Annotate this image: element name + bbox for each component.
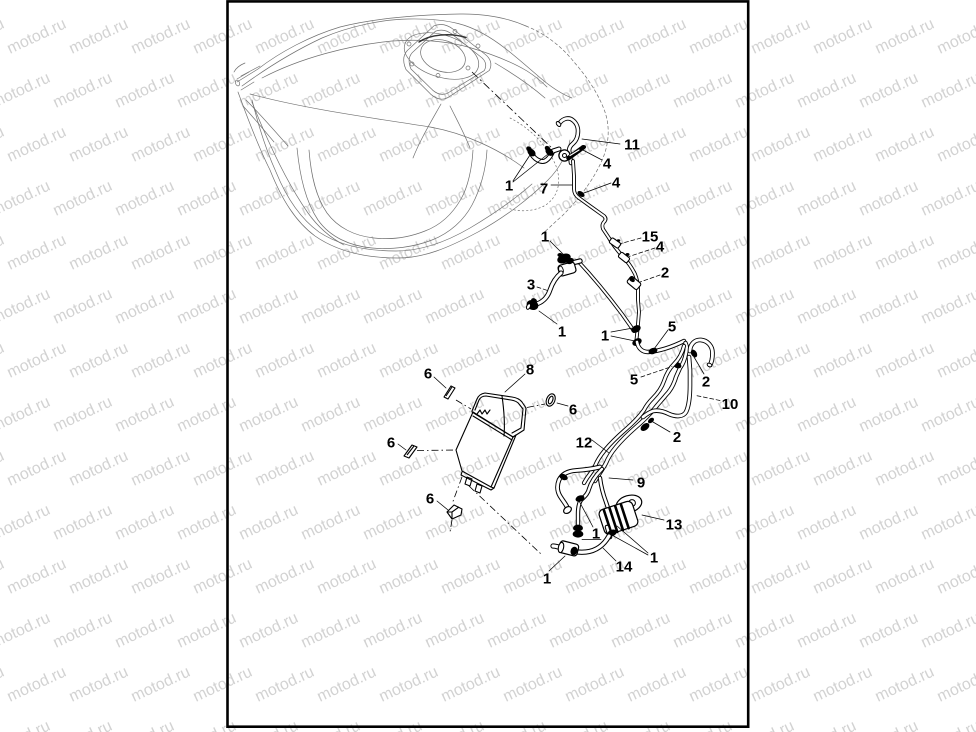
svg-text:10: 10: [722, 396, 739, 413]
svg-text:12: 12: [576, 435, 593, 452]
svg-text:5: 5: [630, 371, 638, 388]
svg-text:4: 4: [603, 156, 612, 173]
svg-text:7: 7: [540, 181, 548, 198]
svg-text:4: 4: [612, 174, 621, 191]
svg-text:1: 1: [558, 323, 566, 340]
svg-text:6: 6: [426, 490, 434, 507]
svg-text:1: 1: [541, 228, 549, 245]
svg-text:1: 1: [505, 177, 513, 194]
svg-text:6: 6: [387, 434, 395, 451]
svg-text:2: 2: [702, 373, 710, 390]
svg-text:11: 11: [624, 136, 640, 153]
svg-text:3: 3: [527, 276, 535, 293]
svg-text:1: 1: [650, 549, 658, 566]
svg-text:8: 8: [526, 361, 534, 378]
svg-text:1: 1: [592, 525, 600, 542]
svg-text:14: 14: [616, 558, 633, 575]
svg-text:9: 9: [637, 474, 645, 491]
svg-text:13: 13: [666, 516, 683, 533]
svg-text:6: 6: [569, 401, 577, 418]
svg-text:2: 2: [673, 429, 681, 446]
svg-text:5: 5: [668, 318, 676, 335]
svg-text:4: 4: [656, 238, 665, 255]
svg-text:1: 1: [543, 570, 551, 587]
svg-text:2: 2: [661, 264, 669, 281]
svg-text:1: 1: [601, 327, 609, 344]
svg-text:6: 6: [424, 365, 432, 382]
